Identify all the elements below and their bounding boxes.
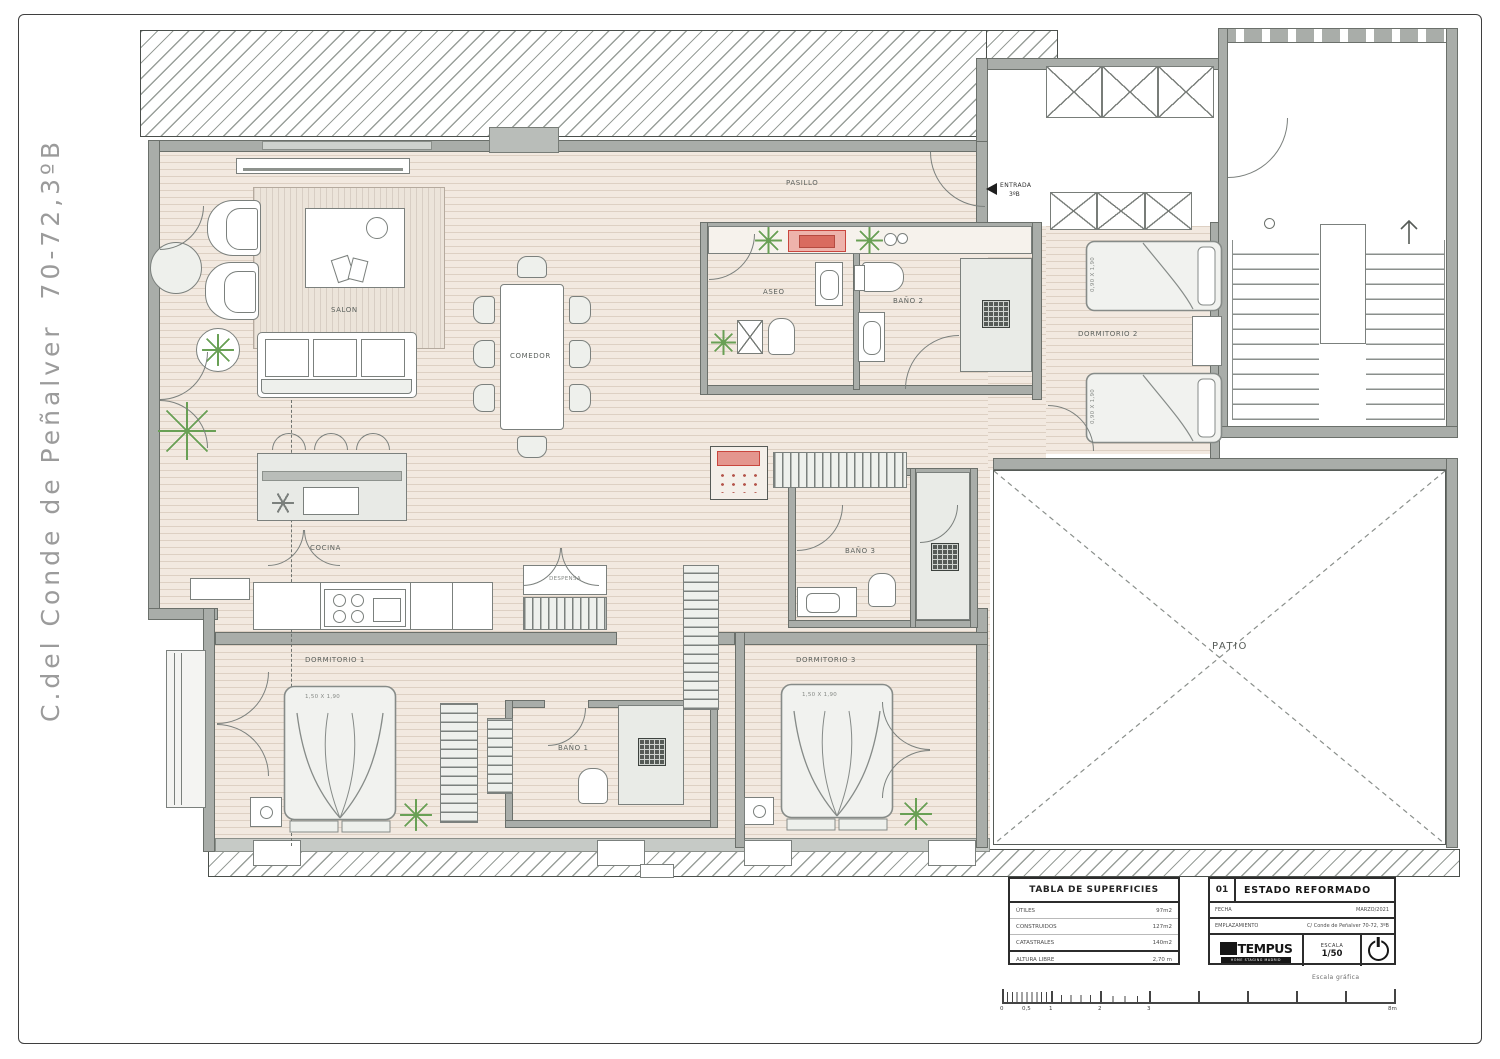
cabinet-divider	[320, 583, 321, 629]
scale-minor-ticks	[1002, 992, 1051, 1002]
sofa-cushion	[361, 339, 405, 377]
dining-chair	[473, 384, 495, 412]
surface-row-value: 127m2	[1153, 924, 1172, 930]
bed-dormitorio-3	[780, 683, 894, 833]
surface-row: CATASTRALES 140m2	[1010, 935, 1178, 950]
entrance-label: ENTRADA	[1000, 182, 1031, 189]
shaft-box	[737, 320, 763, 354]
sofa	[257, 332, 417, 398]
armchair	[205, 262, 259, 320]
side-table	[150, 242, 202, 294]
tv	[243, 168, 403, 171]
cabinet-divider	[410, 583, 411, 629]
faucet-icon	[272, 492, 294, 514]
shower-grate	[638, 738, 666, 766]
sofa-cushion	[313, 339, 357, 377]
bed-size-label: 0,90 X 1,90	[1090, 389, 1096, 424]
newel-post	[1264, 218, 1275, 229]
nightstand	[1192, 316, 1222, 366]
wall	[1218, 426, 1458, 438]
oven	[373, 598, 401, 622]
wall	[853, 232, 860, 390]
dining-chair	[517, 436, 547, 458]
scale-tick	[1296, 991, 1298, 1004]
plant-icon	[900, 798, 932, 830]
vanity-cabinet	[797, 587, 857, 617]
vent-box	[640, 864, 674, 878]
wall	[1446, 458, 1458, 848]
panel-screen	[717, 451, 760, 466]
balcony	[166, 650, 206, 808]
wall	[700, 222, 708, 395]
scale-bar: 0 0,5 1 2 3 8m	[1002, 988, 1396, 1014]
logo-subtext: HOME STAGING MADRID	[1221, 957, 1291, 963]
stair-core	[1320, 224, 1366, 344]
logo-text: TEMPUS	[1238, 941, 1293, 956]
bed-size-label: 1,50 X 1,90	[802, 692, 837, 698]
wall	[788, 468, 796, 628]
pantry-rack	[523, 597, 607, 630]
island-counter-band	[262, 471, 402, 481]
surface-row-label: CONSTRUIDOS	[1016, 924, 1057, 930]
railing	[174, 653, 175, 805]
wall	[976, 58, 988, 142]
wardrobe	[440, 703, 478, 823]
room-label-pasillo: PASILLO	[786, 179, 818, 187]
scale-tick	[1002, 989, 1004, 1004]
scale-bar-caption: Escala gráfica	[1312, 974, 1359, 981]
stair-flight	[1232, 240, 1319, 420]
dining-chair	[517, 256, 547, 278]
date-label: FECHA	[1215, 907, 1232, 913]
facade-hatch-bottom	[208, 849, 1460, 877]
scale-tick	[1051, 991, 1053, 1004]
scale-label-1: 1	[1049, 1006, 1053, 1012]
wall	[700, 385, 1042, 395]
scale-tick	[1345, 991, 1347, 1004]
title-block: 01 ESTADO REFORMADO FECHA MARZO/2021 EMP…	[1208, 877, 1396, 965]
date-value: MARZO/2021	[1356, 907, 1389, 913]
scale-value: 1/50	[1322, 949, 1343, 959]
surface-row-label: ÚTILES	[1016, 908, 1035, 914]
title-block-footer: TEMPUS HOME STAGING MADRID ESCALA 1/50	[1210, 935, 1394, 966]
wall	[735, 632, 988, 645]
patio-cross-icon	[994, 471, 1445, 844]
surface-row: ÚTILES 97m2	[1010, 903, 1178, 919]
surface-table: TABLA DE SUPERFICIES ÚTILES 97m2 CONSTRU…	[1008, 877, 1180, 965]
plant-icon	[711, 330, 736, 355]
basin-bowl	[820, 270, 839, 300]
bed-dormitorio-1	[283, 685, 397, 835]
panel-buttons	[717, 471, 760, 493]
surface-row-value: 140m2	[1153, 940, 1172, 946]
scale-tick	[1198, 991, 1200, 1004]
window-sill	[928, 840, 976, 866]
room-label-bano3: BAÑO 3	[845, 547, 876, 555]
wall	[215, 632, 617, 645]
scale-tick	[1394, 989, 1396, 1004]
scale-tick	[1247, 991, 1249, 1004]
storage-cell	[1145, 192, 1192, 230]
bed-size-label: 1,50 X 1,90	[305, 694, 340, 700]
window-sill	[253, 840, 301, 866]
bed-size-label: 0,90 X 1,90	[1090, 257, 1096, 292]
scale-minor-ticks	[1051, 995, 1100, 1002]
power-icon	[1368, 940, 1389, 961]
wall	[1032, 222, 1042, 400]
window	[262, 141, 432, 150]
toilet	[868, 573, 896, 607]
room-label-bano1: BAÑO 1	[558, 744, 589, 752]
burner	[351, 594, 364, 607]
dining-chair	[569, 340, 591, 368]
location-label: EMPLAZAMIENTO	[1215, 923, 1258, 929]
stair-up-arrow-icon	[1392, 216, 1426, 250]
coffee-table	[305, 208, 405, 288]
wall	[993, 458, 1458, 470]
tv-cabinet	[236, 158, 410, 174]
storage-cell	[1102, 66, 1158, 118]
scale-label-05: 0,5	[1022, 1006, 1031, 1012]
dining-chair	[473, 296, 495, 324]
cabinet-divider	[452, 583, 453, 629]
date-row: FECHA MARZO/2021	[1210, 903, 1394, 919]
surface-footer-label: ALTURA LIBRE	[1016, 957, 1054, 963]
wall	[505, 820, 718, 828]
window-sill	[744, 840, 792, 866]
plant-icon	[400, 799, 432, 831]
room-label-patio: PATIO	[1212, 641, 1248, 652]
toilet	[768, 318, 795, 355]
kitchen-island	[257, 453, 407, 521]
room-label-dorm2: DORMITORIO 2	[1078, 330, 1138, 338]
basin-bowl	[806, 593, 840, 613]
hall-sink	[884, 233, 897, 246]
surface-row: CONSTRUIDOS 127m2	[1010, 919, 1178, 935]
scale-label-0: 0	[1000, 1006, 1004, 1012]
storage-unit	[1050, 192, 1192, 230]
entrance-unit-label: 3ºB	[1009, 191, 1020, 198]
floor-plan-sheet: C.del Conde de Peñalver 70-72,3ºB PATIO	[0, 0, 1500, 1059]
power-icon-bar	[1377, 937, 1380, 947]
location-row: EMPLAZAMIENTO C/ Conde de Peñalver 70-72…	[1210, 919, 1394, 935]
stair-flight	[1366, 240, 1445, 420]
dining-chair	[473, 340, 495, 368]
book	[348, 257, 369, 282]
lamp	[260, 806, 273, 819]
dining-chair	[569, 384, 591, 412]
wall	[970, 468, 978, 628]
scale-minor-ticks	[1100, 996, 1149, 1002]
sheet-number: 01	[1210, 879, 1236, 901]
surface-row-value: 97m2	[1156, 908, 1172, 914]
cistern	[854, 265, 865, 291]
window-sill	[597, 840, 645, 866]
hall-wardrobe	[773, 452, 907, 488]
lamp	[753, 805, 766, 818]
toilet	[862, 262, 904, 292]
washbasin	[858, 312, 885, 362]
linen-closet	[683, 565, 719, 710]
plant-icon	[755, 227, 782, 254]
scale-label-8: 8m	[1388, 1006, 1397, 1012]
surface-footer-value: 2,70 m	[1153, 957, 1172, 963]
nightstand	[250, 797, 282, 827]
dining-chair	[569, 296, 591, 324]
hall-sink	[897, 233, 908, 244]
surface-table-title: TABLA DE SUPERFICIES	[1010, 879, 1178, 903]
basin-bowl	[863, 321, 881, 355]
scale-label-2: 2	[1098, 1006, 1102, 1012]
location-value: C/ Conde de Peñalver 70-72, 3ºB	[1307, 923, 1389, 929]
burner	[333, 594, 346, 607]
patio-area	[993, 470, 1446, 845]
railing	[181, 653, 182, 805]
chimney-block	[489, 127, 559, 153]
storage-cell	[1097, 192, 1144, 230]
scale-cell: ESCALA 1/50	[1304, 935, 1362, 966]
scale-tick	[1149, 991, 1151, 1004]
bed-dormitorio-2-b	[1085, 372, 1223, 444]
wall	[788, 620, 978, 628]
plant-icon	[856, 227, 883, 254]
scale-label-3: 3	[1147, 1006, 1151, 1012]
radiator-box	[190, 578, 250, 600]
entrance-arrow-icon	[986, 183, 997, 195]
scale-tick	[1100, 991, 1102, 1004]
storage-cell	[1046, 66, 1102, 118]
room-label-dorm3: DORMITORIO 3	[796, 656, 856, 664]
surface-footer: ALTURA LIBRE 2,70 m	[1010, 950, 1178, 967]
burner	[333, 610, 346, 623]
wall	[710, 700, 718, 828]
table-lamp	[366, 217, 388, 239]
room-label-aseo: ASEO	[763, 288, 785, 296]
company-logo: TEMPUS HOME STAGING MADRID	[1210, 935, 1304, 966]
kitchen-counter	[253, 582, 493, 630]
north-cell	[1362, 935, 1394, 966]
room-label-comedor: COMEDOR	[508, 352, 553, 360]
room-label-dorm1: DORMITORIO 1	[305, 656, 365, 664]
nightstand	[744, 797, 774, 825]
title-block-header: 01 ESTADO REFORMADO	[1210, 879, 1394, 903]
towel-rack	[487, 718, 513, 794]
storage-cell	[1050, 192, 1097, 230]
room-label-bano2: BAÑO 2	[893, 297, 924, 305]
armchair-seat	[226, 208, 258, 250]
red-mat-center	[799, 235, 835, 248]
kitchen-sink	[303, 487, 359, 515]
armchair-seat	[224, 271, 256, 313]
logo-row: TEMPUS	[1220, 941, 1293, 956]
storage-unit	[1046, 66, 1214, 118]
sofa-cushion	[265, 339, 309, 377]
room-label-salon: SALON	[331, 306, 358, 314]
neighbour-hatch-top	[140, 30, 990, 137]
shower-grate	[931, 543, 959, 571]
wall	[148, 140, 160, 620]
red-mat	[788, 230, 846, 252]
drawing-title: ESTADO REFORMADO	[1236, 879, 1394, 901]
sofa-back	[261, 379, 412, 394]
toilet	[578, 768, 608, 804]
surface-row-label: CATASTRALES	[1016, 940, 1054, 946]
washbasin	[815, 262, 843, 306]
parapet-wall	[1218, 28, 1458, 43]
bed-dormitorio-2-a	[1085, 240, 1223, 312]
burner	[351, 610, 364, 623]
logo-mark-icon	[1220, 942, 1237, 955]
hob	[324, 589, 406, 627]
street-name-label: C.del Conde de Peñalver 70-72,3ºB	[36, 120, 98, 740]
shower-grate	[982, 300, 1010, 328]
storage-cell	[1158, 66, 1214, 118]
wall	[1446, 28, 1458, 438]
armchair	[207, 200, 261, 256]
electrical-panel	[710, 446, 768, 500]
